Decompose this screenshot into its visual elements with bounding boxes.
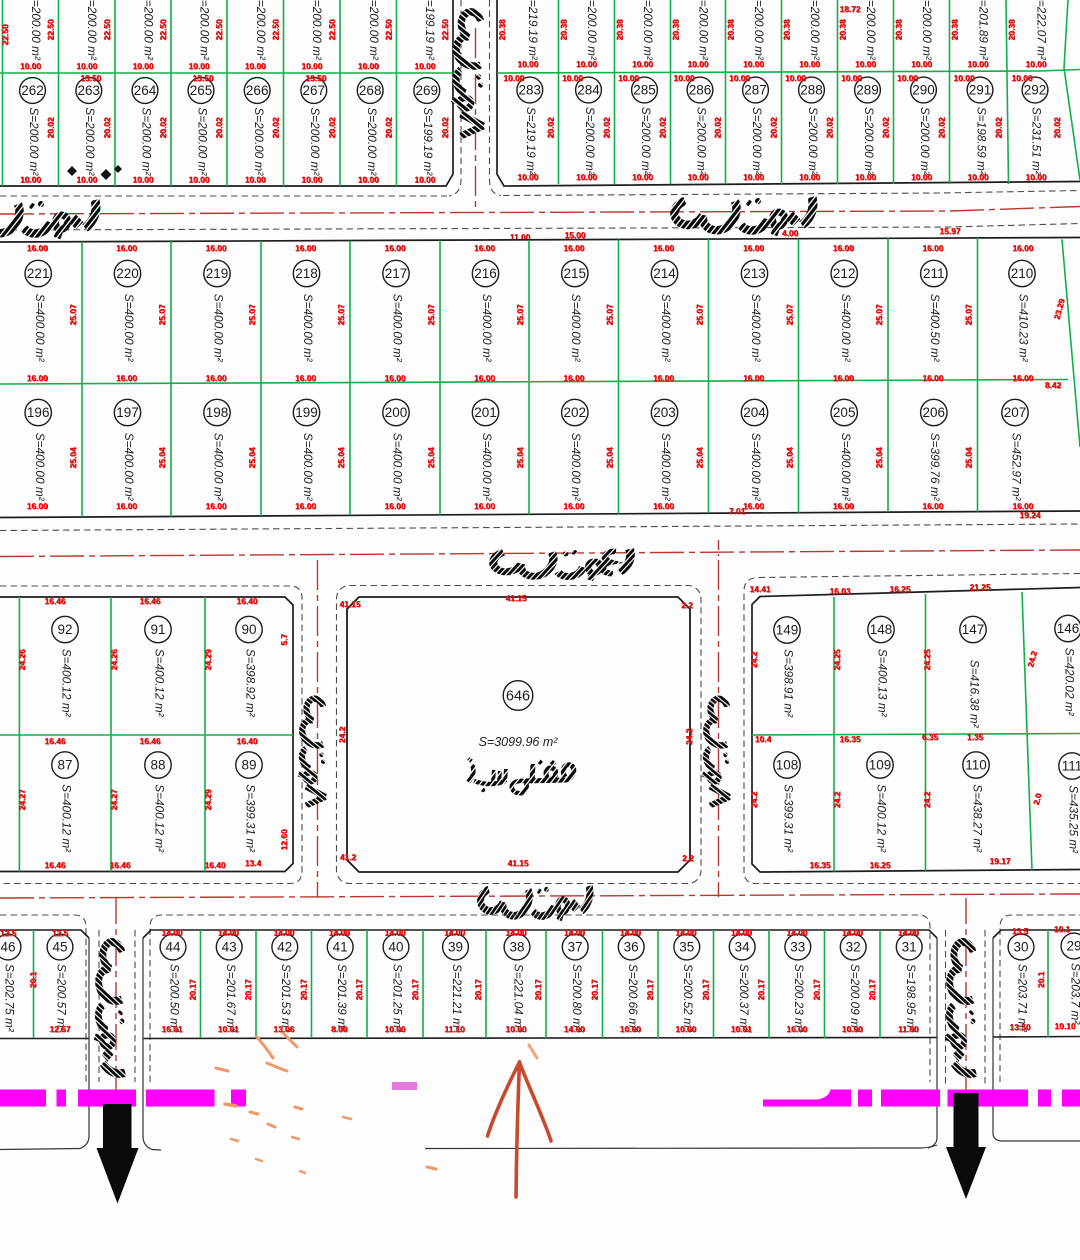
svg-text:S=399.31 m²: S=399.31 m² — [782, 784, 796, 853]
svg-text:S=201.53 m²: S=201.53 m² — [279, 964, 293, 1033]
svg-text:25.07: 25.07 — [605, 304, 615, 325]
svg-text:S=200.00 m²: S=200.00 m² — [140, 107, 154, 176]
svg-text:8.00: 8.00 — [332, 1024, 349, 1034]
svg-text:292: 292 — [1024, 83, 1047, 98]
svg-text:20.02: 20.02 — [658, 117, 668, 138]
svg-text:10.00: 10.00 — [730, 73, 751, 83]
svg-text:16.00: 16.00 — [385, 373, 406, 383]
svg-text:21.25: 21.25 — [970, 582, 991, 592]
svg-text:25.04: 25.04 — [874, 447, 884, 468]
svg-text:25.07: 25.07 — [964, 304, 974, 325]
svg-text:20.02: 20.02 — [271, 117, 281, 138]
svg-text:10.00: 10.00 — [77, 175, 98, 185]
svg-text:20.38: 20.38 — [559, 19, 569, 40]
svg-text:S=200.09 m²: S=200.09 m² — [848, 964, 862, 1033]
svg-text:S=416.38 m²: S=416.38 m² — [968, 660, 982, 729]
svg-text:14.00: 14.00 — [787, 928, 808, 938]
svg-text:20.02: 20.02 — [384, 117, 394, 138]
svg-text:16.35: 16.35 — [840, 734, 861, 744]
svg-text:10.00: 10.00 — [518, 172, 539, 182]
svg-text:16.46: 16.46 — [45, 596, 66, 606]
svg-text:S=420.02 m²: S=420.02 m² — [1063, 648, 1077, 717]
svg-text:16.00: 16.00 — [385, 501, 406, 511]
svg-text:13.4: 13.4 — [245, 858, 262, 868]
svg-text:S=221.04 m²: S=221.04 m² — [512, 964, 526, 1033]
svg-text:14.00: 14.00 — [506, 928, 527, 938]
svg-text:25.04: 25.04 — [964, 447, 974, 468]
svg-text:16.01: 16.01 — [162, 1024, 183, 1034]
svg-text:16.00: 16.00 — [475, 501, 496, 511]
svg-text:109: 109 — [869, 758, 892, 773]
svg-text:2.2: 2.2 — [682, 600, 694, 610]
svg-text:25.04: 25.04 — [68, 447, 78, 468]
svg-text:16.00: 16.00 — [1013, 373, 1034, 383]
svg-text:S=200.00 m²: S=200.00 m² — [806, 107, 820, 176]
svg-text:24.2: 24.2 — [749, 651, 759, 668]
svg-text:13.5: 13.5 — [1012, 926, 1029, 936]
svg-text:S=400.00 m²: S=400.00 m² — [659, 433, 673, 502]
svg-text:10.00: 10.00 — [302, 175, 323, 185]
svg-text:285: 285 — [633, 83, 656, 98]
svg-text:206: 206 — [923, 405, 946, 420]
svg-text:24.29: 24.29 — [203, 649, 213, 670]
svg-text:S=400.12 m²: S=400.12 m² — [153, 784, 167, 853]
svg-text:25.07: 25.07 — [426, 304, 436, 325]
svg-text:10.00: 10.00 — [800, 59, 821, 69]
svg-text:S=400.50 m²: S=400.50 m² — [928, 294, 942, 363]
svg-text:13.50: 13.50 — [193, 73, 214, 83]
svg-text:25.04: 25.04 — [426, 447, 436, 468]
svg-text:16.00: 16.00 — [833, 243, 854, 253]
svg-text:20.38: 20.38 — [838, 19, 848, 40]
svg-text:10.00: 10.00 — [856, 172, 877, 182]
svg-text:288: 288 — [800, 83, 823, 98]
svg-text:25.07: 25.07 — [247, 304, 257, 325]
svg-text:20.02: 20.02 — [937, 117, 947, 138]
svg-text:38: 38 — [509, 940, 524, 955]
svg-text:20.02: 20.02 — [769, 117, 779, 138]
svg-text:10.00: 10.00 — [633, 172, 654, 182]
svg-text:16.00: 16.00 — [117, 243, 138, 253]
svg-text:20.17: 20.17 — [354, 979, 364, 1000]
svg-text:S=200.00 m²: S=200.00 m² — [641, 0, 655, 61]
svg-text:22.50: 22.50 — [214, 19, 224, 40]
svg-text:20.38: 20.38 — [894, 19, 904, 40]
svg-text:20.02: 20.02 — [1052, 117, 1062, 138]
svg-text:20.38: 20.38 — [726, 19, 736, 40]
svg-text:24.27: 24.27 — [109, 789, 119, 810]
svg-text:37: 37 — [568, 940, 583, 955]
svg-text:16.03: 16.03 — [830, 586, 851, 596]
svg-text:16.00: 16.00 — [923, 243, 944, 253]
svg-text:10.00: 10.00 — [415, 61, 436, 71]
svg-text:203: 203 — [653, 405, 676, 420]
svg-text:16.25: 16.25 — [890, 584, 911, 594]
svg-text:269: 269 — [416, 83, 439, 98]
svg-text:13.50: 13.50 — [306, 73, 327, 83]
svg-text:22.50: 22.50 — [102, 19, 112, 40]
svg-text:290: 290 — [912, 83, 935, 98]
svg-text:10.00: 10.00 — [856, 59, 877, 69]
svg-text:16.00: 16.00 — [475, 373, 496, 383]
svg-text:22.50: 22.50 — [440, 19, 450, 40]
svg-text:39: 39 — [448, 940, 463, 955]
svg-text:16.00: 16.00 — [564, 373, 585, 383]
svg-text:197: 197 — [116, 405, 139, 420]
svg-text:42: 42 — [277, 940, 292, 955]
svg-text:41: 41 — [333, 940, 348, 955]
svg-text:14.00: 14.00 — [620, 928, 641, 938]
svg-text:10.00: 10.00 — [563, 73, 584, 83]
svg-text:10.00: 10.00 — [620, 1024, 641, 1034]
svg-text:10.00: 10.00 — [358, 175, 379, 185]
svg-text:S=200.00 m²: S=200.00 m² — [308, 107, 322, 176]
svg-text:S=200.00 m²: S=200.00 m² — [864, 0, 878, 61]
svg-text:20.02: 20.02 — [994, 117, 1004, 138]
svg-text:20.17: 20.17 — [243, 979, 253, 1000]
svg-text:212: 212 — [833, 266, 856, 281]
svg-text:20.02: 20.02 — [713, 117, 723, 138]
svg-text:43: 43 — [222, 940, 237, 955]
svg-text:20.17: 20.17 — [188, 979, 198, 1000]
svg-text:S=400.00 m²: S=400.00 m² — [480, 294, 494, 363]
svg-text:5.7: 5.7 — [279, 633, 289, 645]
svg-text:16.00: 16.00 — [27, 501, 48, 511]
svg-text:46: 46 — [0, 940, 15, 955]
svg-text:108: 108 — [776, 758, 799, 773]
svg-text:10.00: 10.00 — [21, 61, 42, 71]
svg-text:16.00: 16.00 — [117, 373, 138, 383]
svg-text:S=399.31 m²: S=399.31 m² — [244, 784, 258, 853]
svg-text:268: 268 — [359, 83, 382, 98]
svg-text:149: 149 — [776, 623, 799, 638]
svg-text:10.00: 10.00 — [245, 61, 266, 71]
svg-text:20.02: 20.02 — [602, 117, 612, 138]
svg-text:S=222.07 m²: S=222.07 m² — [1035, 0, 1049, 61]
svg-text:S=200.00 m²: S=200.00 m² — [254, 0, 268, 61]
svg-text:S=3099.96 m²: S=3099.96 m² — [479, 735, 559, 749]
svg-text:S=200.00 m²: S=200.00 m² — [697, 0, 711, 61]
svg-text:10.00: 10.00 — [415, 175, 436, 185]
svg-text:20.02: 20.02 — [158, 117, 168, 138]
svg-text:S=198.95 m²: S=198.95 m² — [904, 964, 918, 1033]
svg-text:S=400.00 m²: S=400.00 m² — [391, 433, 405, 502]
svg-text:20.02: 20.02 — [327, 117, 337, 138]
svg-text:S=200.00 m²: S=200.00 m² — [752, 0, 766, 61]
svg-text:213: 213 — [743, 266, 766, 281]
svg-text:20.17: 20.17 — [299, 979, 309, 1000]
svg-text:16.00: 16.00 — [923, 501, 944, 511]
svg-text:16.40: 16.40 — [205, 860, 226, 870]
svg-text:19.24: 19.24 — [1020, 510, 1041, 520]
svg-text:216: 216 — [474, 266, 497, 281]
svg-text:10.00: 10.00 — [385, 1024, 406, 1034]
svg-text:10.4: 10.4 — [755, 734, 772, 744]
svg-text:16.00: 16.00 — [564, 501, 585, 511]
svg-text:14.00: 14.00 — [898, 928, 919, 938]
svg-text:10.00: 10.00 — [189, 175, 210, 185]
svg-text:16.00: 16.00 — [744, 243, 765, 253]
svg-text:14.00: 14.00 — [564, 928, 585, 938]
svg-text:20.17: 20.17 — [590, 979, 600, 1000]
svg-text:44: 44 — [165, 940, 181, 955]
svg-text:18.72: 18.72 — [840, 4, 861, 14]
svg-text:20.17: 20.17 — [867, 979, 877, 1000]
svg-text:16.00: 16.00 — [296, 243, 317, 253]
svg-text:S=200.00 m²: S=200.00 m² — [585, 0, 599, 61]
svg-text:24.2: 24.2 — [337, 726, 347, 743]
svg-text:291: 291 — [969, 83, 992, 98]
svg-text:S=200.00 m²: S=200.00 m² — [695, 107, 709, 176]
svg-text:20.17: 20.17 — [533, 979, 543, 1000]
svg-text:148: 148 — [870, 622, 893, 637]
svg-text:S=400.00 m²: S=400.00 m² — [569, 294, 583, 363]
svg-text:16.00: 16.00 — [206, 373, 227, 383]
svg-text:20.38: 20.38 — [782, 19, 792, 40]
svg-text:210: 210 — [1011, 266, 1034, 281]
svg-text:10.00: 10.00 — [577, 172, 598, 182]
svg-text:25.07: 25.07 — [336, 304, 346, 325]
svg-text:33: 33 — [790, 940, 805, 955]
svg-text:S=400.00 m²: S=400.00 m² — [122, 294, 136, 363]
svg-text:S=400.00 m²: S=400.00 m² — [122, 433, 136, 502]
svg-text:16.00: 16.00 — [475, 243, 496, 253]
svg-text:S=200.00 m²: S=200.00 m² — [252, 107, 266, 176]
svg-text:19.17: 19.17 — [990, 856, 1011, 866]
svg-text:20.38: 20.38 — [950, 19, 960, 40]
svg-text:10.00: 10.00 — [577, 59, 598, 69]
svg-text:10.00: 10.00 — [302, 61, 323, 71]
svg-text:S=202.75 m²: S=202.75 m² — [3, 964, 17, 1033]
svg-text:16.00: 16.00 — [296, 373, 317, 383]
svg-text:10.00: 10.00 — [133, 175, 154, 185]
svg-text:S=400.00 m²: S=400.00 m² — [480, 433, 494, 502]
svg-text:20.1: 20.1 — [1036, 971, 1046, 988]
svg-text:16.00: 16.00 — [1013, 243, 1034, 253]
svg-text:S=435.25 m²: S=435.25 m² — [1067, 785, 1080, 854]
svg-text:22.50: 22.50 — [327, 19, 337, 40]
svg-text:10.00: 10.00 — [189, 61, 210, 71]
svg-text:20.02: 20.02 — [440, 117, 450, 138]
svg-text:199: 199 — [295, 405, 318, 420]
svg-text:16.00: 16.00 — [27, 243, 48, 253]
svg-text:10.00: 10.00 — [912, 172, 933, 182]
svg-text:16.00: 16.00 — [296, 501, 317, 511]
svg-text:646: 646 — [506, 689, 530, 705]
svg-text:25.07: 25.07 — [785, 304, 795, 325]
svg-text:202: 202 — [564, 405, 587, 420]
svg-text:201: 201 — [474, 405, 497, 420]
svg-text:S=200.00 m²: S=200.00 m² — [862, 107, 876, 176]
svg-text:14.00: 14.00 — [385, 928, 406, 938]
svg-text:289: 289 — [856, 83, 879, 98]
svg-text:11.00: 11.00 — [899, 1024, 920, 1034]
svg-text:34: 34 — [735, 940, 751, 955]
svg-text:10.00: 10.00 — [968, 172, 989, 182]
svg-text:1.35: 1.35 — [967, 732, 984, 742]
svg-text:16.00: 16.00 — [654, 501, 675, 511]
svg-text:10.00: 10.00 — [1026, 59, 1047, 69]
svg-text:25.07: 25.07 — [695, 304, 705, 325]
svg-text:287: 287 — [744, 83, 767, 98]
svg-text:36: 36 — [624, 940, 639, 955]
svg-text:146: 146 — [1057, 621, 1080, 636]
svg-text:16.00: 16.00 — [206, 243, 227, 253]
svg-text:16.00: 16.00 — [27, 373, 48, 383]
svg-text:16.25: 16.25 — [870, 860, 891, 870]
svg-text:2.2: 2.2 — [683, 853, 695, 863]
svg-text:10.00: 10.00 — [1012, 73, 1033, 83]
svg-text:S=400.12 m²: S=400.12 m² — [60, 784, 74, 853]
svg-text:S=200.00 m²: S=200.00 m² — [367, 0, 381, 61]
svg-text:262: 262 — [21, 83, 44, 98]
svg-text:S=219.19 m²: S=219.19 m² — [524, 107, 538, 176]
svg-text:16.00: 16.00 — [206, 501, 227, 511]
svg-text:215: 215 — [564, 266, 587, 281]
svg-text:12.60: 12.60 — [279, 829, 289, 850]
svg-text:24.27: 24.27 — [17, 789, 27, 810]
svg-text:40: 40 — [388, 940, 403, 955]
svg-text:10.01: 10.01 — [731, 1024, 752, 1034]
svg-text:41.15: 41.15 — [508, 858, 529, 868]
svg-text:S=200.00 m²: S=200.00 m² — [750, 107, 764, 176]
svg-text:20.02: 20.02 — [46, 117, 56, 138]
svg-text:20.1: 20.1 — [28, 971, 38, 988]
svg-text:25.04: 25.04 — [785, 447, 795, 468]
svg-text:S=400.00 m²: S=400.00 m² — [33, 294, 47, 363]
svg-text:10.00: 10.00 — [800, 172, 821, 182]
svg-text:198: 198 — [206, 405, 229, 420]
svg-text:35: 35 — [679, 940, 694, 955]
svg-text:S=400.00 m²: S=400.00 m² — [749, 433, 763, 502]
svg-text:S=400.00 m²: S=400.00 m² — [839, 294, 853, 363]
svg-text:S=399.76 m²: S=399.76 m² — [928, 433, 942, 502]
svg-text:14.41: 14.41 — [750, 584, 771, 594]
svg-text:S=400.13 m²: S=400.13 m² — [876, 649, 890, 718]
svg-text:16.00: 16.00 — [833, 501, 854, 511]
svg-text:S=200.00 m²: S=200.00 m² — [85, 0, 99, 61]
svg-text:S=201.89 m²: S=201.89 m² — [977, 0, 991, 61]
svg-text:4.00: 4.00 — [782, 228, 799, 238]
svg-text:24.25: 24.25 — [922, 649, 932, 670]
svg-text:S=200.00 m²: S=200.00 m² — [142, 0, 156, 61]
svg-text:S=200.66 m²: S=200.66 m² — [626, 964, 640, 1033]
svg-text:218: 218 — [295, 266, 318, 281]
svg-text:25.04: 25.04 — [695, 447, 705, 468]
svg-text:10.00: 10.00 — [245, 175, 266, 185]
svg-text:24.29: 24.29 — [203, 789, 213, 810]
svg-text:S=400.00 m²: S=400.00 m² — [659, 294, 673, 363]
svg-text:13.50: 13.50 — [81, 73, 102, 83]
svg-text:16.40: 16.40 — [237, 596, 258, 606]
svg-text:20.02: 20.02 — [102, 117, 112, 138]
svg-text:S=231.51 m²: S=231.51 m² — [1030, 107, 1044, 176]
svg-text:16.46: 16.46 — [140, 596, 161, 606]
svg-text:10.00: 10.00 — [968, 59, 989, 69]
svg-text:S=400.00 m²: S=400.00 m² — [33, 433, 47, 502]
svg-text:14.00: 14.00 — [676, 928, 697, 938]
svg-text:10.00: 10.00 — [358, 61, 379, 71]
svg-text:11.00: 11.00 — [510, 232, 531, 242]
svg-text:S=400.00 m²: S=400.00 m² — [212, 294, 226, 363]
svg-text:10.00: 10.00 — [744, 59, 765, 69]
svg-text:41.15: 41.15 — [340, 599, 361, 609]
svg-text:200: 200 — [385, 405, 408, 420]
svg-text:204: 204 — [743, 405, 766, 420]
svg-text:10.00: 10.00 — [133, 61, 154, 71]
svg-text:16.00: 16.00 — [787, 1024, 808, 1034]
svg-text:S=452.97 m²: S=452.97 m² — [1010, 433, 1024, 502]
svg-text:10.00: 10.00 — [786, 73, 807, 83]
svg-text:S=219.19 m²: S=219.19 m² — [526, 0, 540, 61]
svg-text:10.00: 10.00 — [674, 73, 695, 83]
svg-text:25.04: 25.04 — [605, 447, 615, 468]
svg-text:S=438.27 m²: S=438.27 m² — [971, 784, 985, 853]
svg-text:S=200.00 m²: S=200.00 m² — [198, 0, 212, 61]
svg-text:20.17: 20.17 — [701, 979, 711, 1000]
svg-text:25.04: 25.04 — [247, 447, 257, 468]
svg-text:214: 214 — [653, 266, 676, 281]
svg-text:13.50: 13.50 — [1010, 1022, 1031, 1032]
svg-text:219: 219 — [206, 266, 229, 281]
svg-text:10.00: 10.00 — [842, 73, 863, 83]
svg-text:24.25: 24.25 — [832, 649, 842, 670]
svg-text:S=398.92 m²: S=398.92 m² — [244, 649, 258, 718]
svg-text:S=200.80 m²: S=200.80 m² — [570, 964, 584, 1033]
svg-text:8.42: 8.42 — [1045, 380, 1062, 390]
svg-text:22.50: 22.50 — [271, 19, 281, 40]
svg-text:S=201.39 m²: S=201.39 m² — [335, 964, 349, 1033]
svg-text:S=200.00 m²: S=200.00 m² — [310, 0, 324, 61]
svg-text:284: 284 — [577, 83, 600, 98]
svg-text:41.15: 41.15 — [506, 593, 527, 603]
svg-text:16.40: 16.40 — [237, 736, 258, 746]
svg-text:24.2: 24.2 — [832, 791, 842, 808]
svg-text:14.00: 14.00 — [564, 1024, 585, 1034]
svg-text:S=200.57 m²: S=200.57 m² — [55, 964, 69, 1033]
svg-text:S=200.00 m²: S=200.00 m² — [583, 107, 597, 176]
svg-text:286: 286 — [689, 83, 712, 98]
svg-text:16.00: 16.00 — [654, 373, 675, 383]
svg-text:14.00: 14.00 — [842, 928, 863, 938]
svg-text:10.00: 10.00 — [954, 73, 975, 83]
svg-text:S=201.67 m²: S=201.67 m² — [224, 964, 238, 1033]
svg-text:12.57: 12.57 — [50, 1024, 71, 1034]
svg-text:20.17: 20.17 — [756, 979, 766, 1000]
svg-text:87: 87 — [57, 758, 72, 773]
svg-text:S=400.00 m²: S=400.00 m² — [391, 294, 405, 363]
svg-text:31: 31 — [902, 940, 917, 955]
svg-text:32: 32 — [846, 940, 861, 955]
svg-text:89: 89 — [241, 758, 256, 773]
svg-text:16.35: 16.35 — [810, 860, 831, 870]
svg-text:20.02: 20.02 — [214, 117, 224, 138]
svg-text:S=400.00 m²: S=400.00 m² — [301, 433, 315, 502]
svg-text:S=410.23 m²: S=410.23 m² — [1017, 294, 1031, 363]
svg-text:16.46: 16.46 — [140, 736, 161, 746]
svg-text:16.00: 16.00 — [654, 243, 675, 253]
svg-text:S=400.00 m²: S=400.00 m² — [212, 433, 226, 502]
svg-text:S=200.00 m²: S=200.00 m² — [920, 0, 934, 61]
svg-text:25.07: 25.07 — [68, 304, 78, 325]
svg-text:25.07: 25.07 — [157, 304, 167, 325]
svg-text:S=398.91 m²: S=398.91 m² — [782, 649, 796, 718]
svg-text:10.00: 10.00 — [77, 61, 98, 71]
svg-text:S=400.12 m²: S=400.12 m² — [153, 649, 167, 718]
svg-text:14.00: 14.00 — [218, 928, 239, 938]
svg-text:263: 263 — [78, 83, 101, 98]
svg-text:S=203.7 m²: S=203.7 m² — [1069, 963, 1080, 1025]
